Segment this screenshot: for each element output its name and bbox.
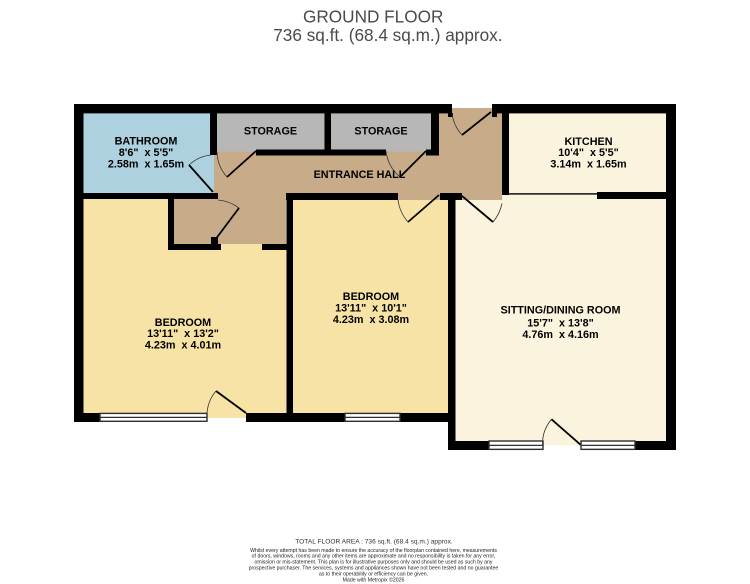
svg-text:10'4" x 5'5": 10'4" x 5'5" [558, 147, 618, 159]
svg-text:13'11" x 10'1": 13'11" x 10'1" [335, 303, 407, 315]
svg-text:4.23m x 3.08m: 4.23m x 3.08m [333, 314, 409, 326]
svg-text:SITTING/DINING ROOM: SITTING/DINING ROOM [501, 305, 621, 317]
svg-text:STORAGE: STORAGE [354, 125, 407, 137]
svg-text:ENTRANCE HALL: ENTRANCE HALL [314, 169, 406, 181]
svg-text:TOTAL FLOOR AREA : 736 sq.ft.: TOTAL FLOOR AREA : 736 sq.ft. (68.4 sq.m… [295, 538, 453, 545]
svg-text:736 sq.ft. (68.4 sq.m.) approx: 736 sq.ft. (68.4 sq.m.) approx. [273, 25, 502, 45]
svg-text:2.58m x 1.65m: 2.58m x 1.65m [108, 158, 184, 170]
svg-text:Made with Metropix ©2026: Made with Metropix ©2026 [343, 576, 405, 583]
svg-text:BATHROOM: BATHROOM [115, 136, 178, 148]
svg-text:3.14m x 1.65m: 3.14m x 1.65m [550, 158, 626, 170]
svg-text:GROUND FLOOR: GROUND FLOOR [303, 6, 443, 26]
svg-text:8'6" x 5'5": 8'6" x 5'5" [119, 147, 173, 159]
svg-text:4.76m x 4.16m: 4.76m x 4.16m [522, 329, 598, 341]
svg-text:STORAGE: STORAGE [244, 125, 297, 137]
svg-text:13'11" x 13'2": 13'11" x 13'2" [147, 328, 219, 340]
svg-text:BEDROOM: BEDROOM [343, 291, 399, 303]
svg-text:KITCHEN: KITCHEN [565, 136, 613, 148]
svg-text:15'7" x 13'8": 15'7" x 13'8" [527, 317, 593, 329]
svg-text:4.23m x 4.01m: 4.23m x 4.01m [145, 339, 221, 351]
